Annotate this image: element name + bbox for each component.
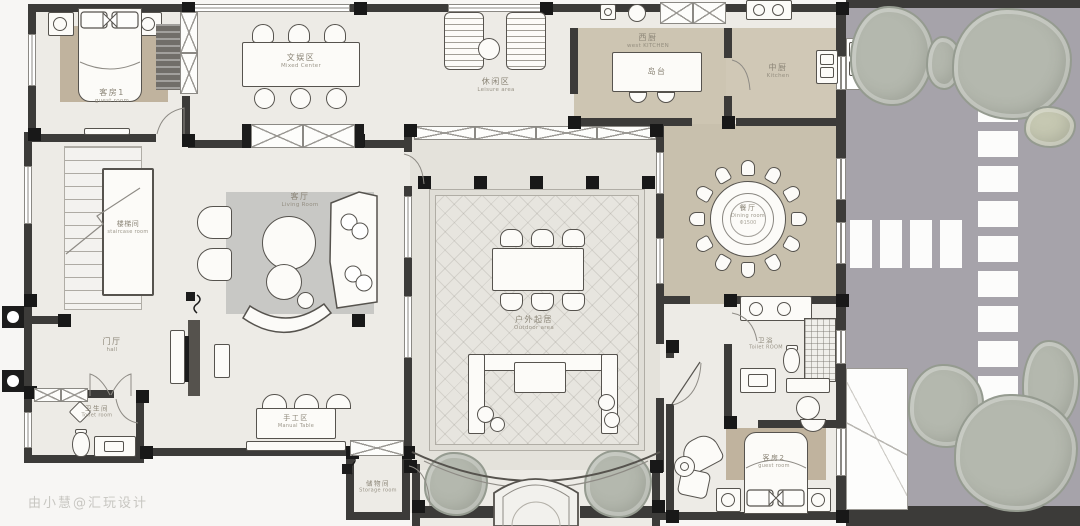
cooktop	[628, 4, 646, 22]
column	[352, 314, 365, 327]
lamp	[141, 17, 155, 31]
sink-basin	[749, 302, 763, 316]
cabinet	[156, 24, 180, 90]
wall	[570, 118, 692, 126]
column	[58, 314, 71, 327]
label-zh: 户外起居	[514, 315, 554, 325]
lounge-chair	[444, 12, 484, 70]
window	[24, 412, 32, 448]
label-zh: 储物间	[359, 480, 397, 488]
powder-console	[786, 378, 830, 393]
wall	[662, 296, 690, 304]
outside-bottom-left	[0, 456, 346, 526]
outdoor-table	[492, 248, 584, 291]
chair	[324, 24, 346, 43]
bed	[744, 432, 808, 514]
vanity-sink	[748, 374, 768, 387]
label-en: guest room	[758, 463, 790, 470]
label-zh: 文娱区	[281, 53, 321, 63]
label-zh: 休闲区	[477, 77, 514, 87]
wall	[188, 140, 246, 148]
label-zh: 西厨	[627, 33, 669, 43]
lamp	[721, 493, 735, 507]
column	[724, 294, 737, 307]
chair	[531, 229, 554, 247]
sink-basin	[820, 67, 834, 78]
column	[666, 340, 679, 353]
shoe-cabinet	[61, 388, 88, 402]
window	[836, 330, 846, 364]
column	[568, 116, 581, 129]
wall-cabinet	[693, 2, 726, 24]
column	[140, 446, 153, 459]
chair	[741, 262, 755, 278]
column	[650, 124, 663, 137]
label-en: west KITCHEN	[627, 44, 669, 51]
sink-basin	[777, 302, 791, 316]
tree	[584, 450, 652, 518]
window	[836, 158, 846, 200]
storage-cabinet	[350, 440, 404, 456]
window	[404, 196, 412, 258]
armchair	[197, 206, 232, 239]
chair	[689, 212, 705, 226]
vanity-sink	[104, 441, 124, 452]
label-en: staircase room	[107, 229, 148, 236]
side-table	[297, 292, 314, 309]
coffee-table	[262, 216, 316, 270]
sideboard	[251, 124, 303, 148]
label-dim: Φ1500	[731, 220, 765, 227]
garden-gate	[846, 368, 908, 510]
tree	[1024, 106, 1076, 148]
column	[836, 294, 849, 307]
burner	[772, 4, 784, 16]
burner	[753, 4, 765, 16]
label-en: guest room	[95, 99, 129, 106]
side-table	[214, 344, 230, 378]
label-bath: 卫浴 Toilet ROOM	[749, 337, 783, 352]
column	[642, 176, 655, 189]
label-hall: 门厅 hall	[103, 337, 122, 355]
wall-cabinet	[660, 2, 693, 24]
label-west-kitchen: 西厨 west KITCHEN	[627, 33, 669, 51]
label-en: Manual Table	[278, 423, 314, 430]
label-zh: 卫浴	[749, 337, 783, 345]
window	[836, 222, 846, 264]
chair	[741, 160, 755, 176]
wall	[346, 512, 410, 520]
column	[652, 500, 665, 513]
window	[475, 126, 536, 140]
column	[182, 134, 195, 147]
label-en: hall	[103, 348, 122, 355]
label-dining: 餐厅 Dining room Φ1500	[731, 204, 765, 226]
wardrobe	[180, 12, 198, 53]
stepping-stone	[978, 341, 1018, 367]
floor-lamp	[342, 464, 352, 474]
column	[474, 176, 487, 189]
tree	[954, 394, 1078, 512]
column	[418, 176, 431, 189]
sofa-table	[514, 362, 566, 393]
label-zh: 中厨	[767, 63, 790, 73]
label-en: Mixed Center	[281, 64, 321, 71]
lamp	[811, 493, 825, 507]
column	[836, 2, 849, 15]
label-outdoor: 户外起居 Outdoor area	[514, 315, 554, 333]
stepping-stone	[978, 166, 1018, 192]
bench	[84, 128, 130, 135]
window	[656, 238, 664, 284]
window	[836, 428, 846, 476]
window	[28, 34, 36, 86]
plant	[604, 412, 620, 428]
column	[404, 460, 417, 473]
window	[597, 126, 656, 140]
armchair	[197, 248, 232, 281]
shower	[804, 318, 836, 382]
toilet	[783, 348, 800, 373]
label-en: Leisure area	[477, 88, 514, 95]
column	[650, 460, 663, 473]
stepping-stone	[978, 201, 1018, 227]
plant	[598, 394, 615, 411]
sideboard-end	[355, 124, 364, 148]
chair	[290, 88, 311, 109]
tree	[424, 452, 488, 516]
label-zh: 客房1	[95, 88, 129, 98]
label-kitchen: 中厨 Kitchen	[767, 63, 790, 81]
column	[136, 390, 149, 403]
label-zh: 岛台	[648, 67, 667, 77]
label-zh: 客房2	[758, 454, 790, 463]
floor-plan-canvas: 客房1 guest room 文娱区 Mixed Center 休闲区 Leis…	[0, 0, 1080, 526]
stepping-stone	[880, 220, 902, 268]
column	[586, 176, 599, 189]
stepping-stone	[850, 220, 872, 268]
window	[404, 296, 412, 358]
window	[24, 166, 32, 224]
label-entertainment: 文娱区 Mixed Center	[281, 53, 321, 71]
tree	[952, 8, 1072, 120]
label-guest-room-1: 客房1 guest room	[95, 88, 129, 106]
watermark: 由小慧@汇玩设计	[28, 492, 148, 511]
lamp	[53, 17, 67, 31]
floor-lamp	[186, 292, 195, 301]
window	[448, 4, 544, 12]
shoe-cabinet	[34, 388, 61, 402]
label-en: Outdoor area	[514, 326, 554, 333]
sideboard	[303, 124, 355, 148]
column	[724, 416, 737, 429]
column	[666, 510, 679, 523]
column	[354, 2, 367, 15]
label-staircase: 楼梯间 staircase room	[107, 220, 148, 236]
chair	[562, 229, 585, 247]
stepping-stone	[978, 236, 1018, 262]
wall	[724, 28, 732, 58]
wardrobe	[180, 53, 198, 94]
label-zh: 门厅	[103, 337, 122, 347]
chair	[500, 293, 523, 311]
plant	[490, 417, 505, 432]
lounge-chair	[506, 12, 546, 70]
label-en: Storage room	[359, 488, 397, 495]
chair	[791, 212, 807, 226]
wall	[28, 134, 156, 142]
label-craft: 手工区 Manual Table	[278, 414, 314, 430]
window	[188, 4, 350, 12]
window	[414, 126, 475, 140]
label-guest-room-2: 客房2 guest room	[758, 454, 790, 470]
label-en: Living Room	[281, 203, 318, 210]
low-cabinet	[246, 441, 346, 451]
chair	[562, 293, 585, 311]
wall	[736, 118, 844, 126]
outside-bottom-right	[658, 520, 846, 526]
column	[836, 510, 849, 523]
chair	[531, 293, 554, 311]
chair	[254, 88, 275, 109]
chair	[326, 88, 347, 109]
column	[404, 124, 417, 137]
wall	[666, 404, 674, 520]
equipment-dial	[7, 311, 19, 323]
window	[656, 152, 664, 194]
side-table	[478, 38, 500, 60]
label-living: 客厅 Living Room	[281, 192, 318, 210]
tree	[850, 6, 934, 106]
label-zh: 客厅	[281, 192, 318, 202]
label-zh: 餐厅	[731, 204, 765, 213]
label-zh: 手工区	[278, 414, 314, 423]
sink-basin	[604, 8, 612, 16]
stepping-stone	[978, 306, 1018, 332]
stepping-stone	[940, 220, 962, 268]
chair	[288, 24, 310, 43]
column	[24, 294, 37, 307]
wall	[412, 464, 420, 526]
label-leisure: 休闲区 Leisure area	[477, 77, 514, 95]
stepping-stone	[978, 271, 1018, 297]
column	[722, 116, 735, 129]
column	[530, 176, 543, 189]
window	[536, 126, 597, 140]
column	[28, 128, 41, 141]
toilet	[72, 432, 90, 457]
tv-console	[170, 330, 185, 384]
sideboard-end	[242, 124, 251, 148]
label-toilet-left: 卫生间 Toilet room	[82, 405, 113, 420]
stepping-stone	[910, 220, 932, 268]
label-zh: 卫生间	[82, 405, 113, 413]
stepping-stone	[978, 131, 1018, 157]
label-storage: 储物间 Storage room	[359, 480, 397, 495]
label-en: Toilet room	[82, 413, 113, 420]
sink-basin	[820, 54, 834, 65]
wall	[570, 28, 578, 94]
wash-basin	[796, 396, 820, 420]
label-en: Toilet ROOM	[749, 345, 783, 352]
column	[412, 500, 425, 513]
label-island: 岛台	[648, 67, 667, 77]
label-zh: 楼梯间	[107, 220, 148, 229]
tv-wall	[188, 320, 200, 396]
chair	[500, 229, 523, 247]
chair	[252, 24, 274, 43]
wall	[724, 344, 732, 422]
kettle	[680, 462, 689, 471]
equipment-dial	[7, 375, 19, 387]
label-en: Kitchen	[767, 74, 790, 81]
tv	[185, 336, 189, 382]
coffee-table	[266, 264, 302, 300]
